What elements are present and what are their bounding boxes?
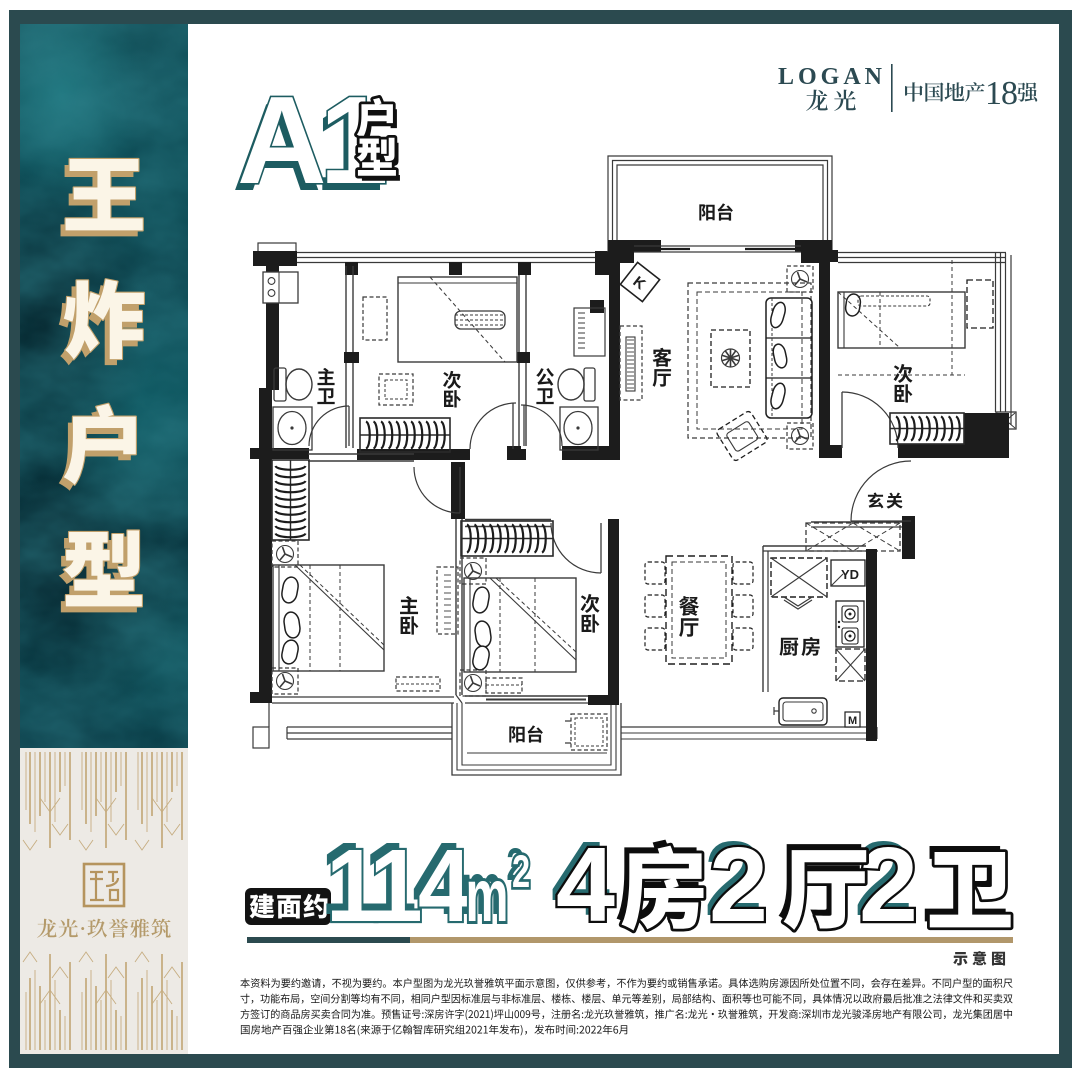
svg-text:LOGAN: LOGAN [778,64,886,90]
svg-text:2: 2 [709,826,768,944]
svg-text:m: m [466,856,507,938]
svg-text:2: 2 [859,826,918,944]
svg-text:YD: YD [841,567,859,582]
svg-text:18: 18 [985,75,1017,112]
svg-text:M: M [848,715,857,727]
svg-text:114: 114 [326,829,471,944]
svg-text:4: 4 [556,826,615,944]
svg-text:2: 2 [512,847,530,898]
svg-text:K: K [630,273,649,293]
